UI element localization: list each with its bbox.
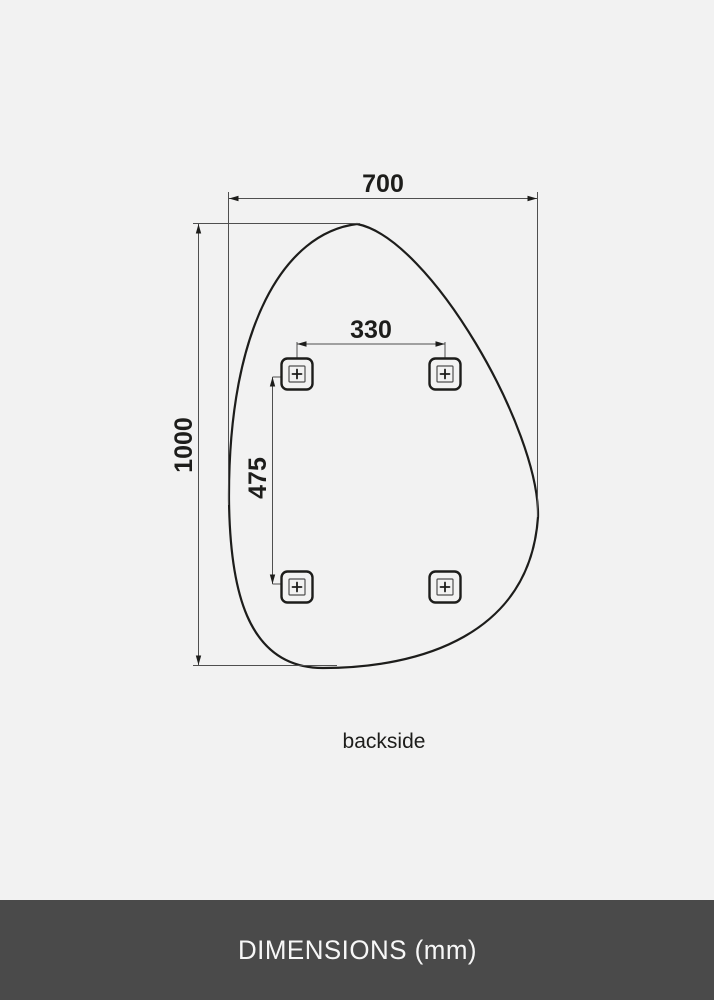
bracket-bottom-right: [430, 572, 461, 603]
dimension-bracket-vertical: 475: [244, 377, 283, 584]
mirror-diagram-svg: 700 1000 330: [0, 0, 714, 900]
arrow-down-icon: [270, 575, 275, 585]
mirror-outline: [229, 224, 538, 668]
dimension-drawing: 700 1000 330: [0, 0, 714, 900]
bracket-spacing-horizontal-label: 330: [350, 316, 392, 344]
arrow-right-icon: [528, 196, 538, 201]
bracket-bottom-left: [282, 572, 313, 603]
bracket-top-right: [430, 359, 461, 390]
width-value-label: 700: [362, 170, 404, 198]
dimension-height: 1000: [170, 224, 360, 666]
dimension-bracket-horizontal: 330: [297, 316, 445, 358]
height-value-label: 1000: [170, 417, 198, 473]
arrow-down-icon: [196, 656, 201, 666]
footer-title: DIMENSIONS (mm): [237, 935, 476, 966]
bracket-top-left: [282, 359, 313, 390]
view-caption: backside: [343, 730, 426, 753]
page: 700 1000 330: [0, 0, 714, 1000]
arrow-right-icon: [436, 341, 446, 346]
arrow-left-icon: [229, 196, 239, 201]
footer-bar: DIMENSIONS (mm): [0, 900, 714, 1000]
arrow-up-icon: [270, 377, 275, 387]
arrow-up-icon: [196, 224, 201, 234]
arrow-left-icon: [297, 341, 307, 346]
bracket-spacing-vertical-label: 475: [244, 457, 272, 499]
